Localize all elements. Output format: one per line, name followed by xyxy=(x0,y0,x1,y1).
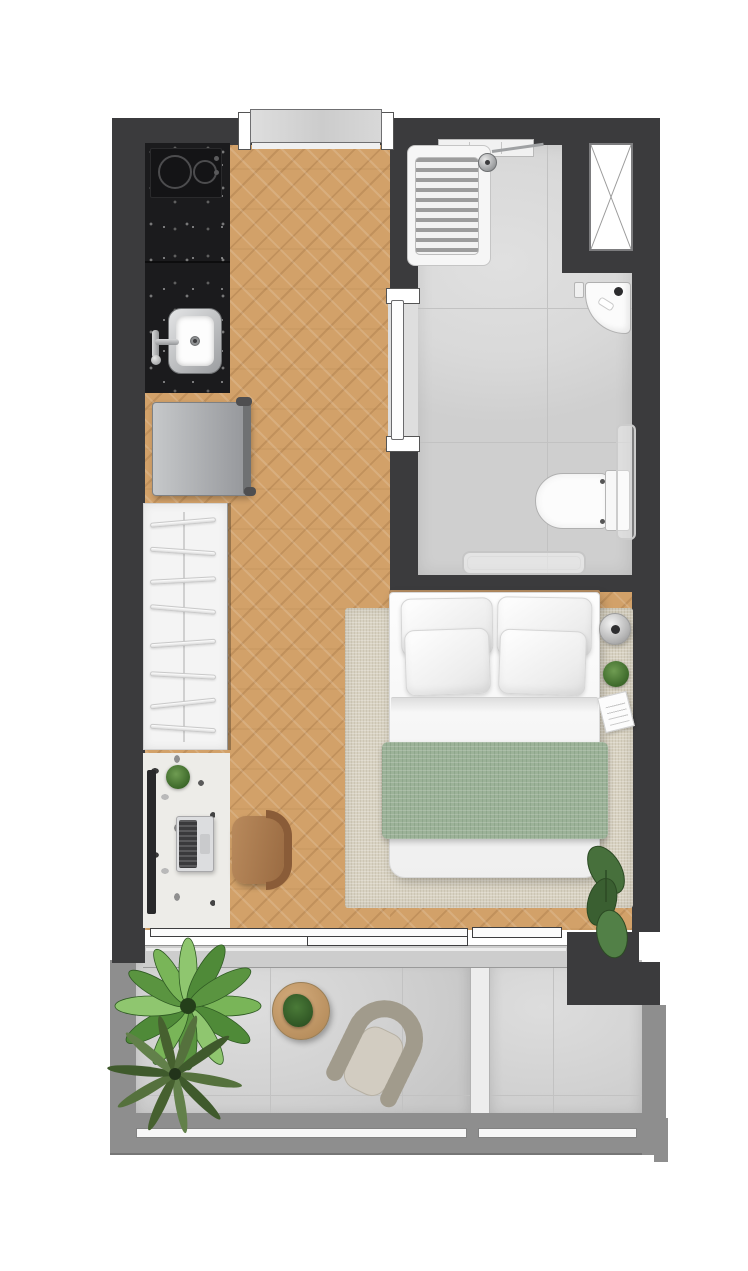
sliding-door-panel xyxy=(307,936,468,946)
book-text-lines xyxy=(605,700,630,726)
wardrobe-rail xyxy=(183,512,185,742)
sink-drain-icon xyxy=(190,336,200,346)
refrigerator-door-edge xyxy=(243,404,251,494)
shower-drain-grate xyxy=(415,157,479,255)
bathroom-wall-lower xyxy=(390,452,418,592)
wall-right xyxy=(632,273,660,932)
desk-plant xyxy=(166,765,190,789)
cooktop-knob-icon xyxy=(214,170,219,175)
toilet-hinge xyxy=(600,479,605,484)
wall-left xyxy=(112,118,145,963)
tv xyxy=(147,770,156,914)
floor-plan xyxy=(0,0,748,1271)
sliding-door-panel xyxy=(472,927,562,938)
bath-mat xyxy=(462,551,586,575)
palm-plant xyxy=(100,1012,250,1138)
balcony-wall-corner xyxy=(654,1118,668,1162)
glass-railing xyxy=(478,1128,637,1138)
toilet-bowl xyxy=(535,473,609,529)
tile-line xyxy=(270,960,271,1117)
burner-icon xyxy=(158,155,192,189)
tile-line xyxy=(416,442,632,443)
washbasin-wall-tab xyxy=(574,282,584,298)
towel-rail xyxy=(616,424,636,540)
wardrobe-edge-shadow xyxy=(227,503,231,750)
wall-balcony-corner-ext xyxy=(639,962,660,1005)
green-blanket xyxy=(382,742,608,839)
lamp-center xyxy=(611,625,620,634)
tile-line xyxy=(490,1095,642,1096)
pillow xyxy=(498,629,587,697)
bath-mat-border xyxy=(467,556,581,570)
counter-seam xyxy=(145,261,230,263)
entrance-door-jamb xyxy=(381,112,394,150)
refrigerator xyxy=(152,402,250,496)
table-plant xyxy=(283,994,313,1027)
shower-head-center xyxy=(485,160,490,165)
drain-center xyxy=(193,339,197,343)
wardrobe xyxy=(143,503,228,750)
shower-head-icon xyxy=(478,153,497,172)
tile-line xyxy=(553,960,554,1117)
bedside-plant xyxy=(603,661,629,687)
laptop-trackpad xyxy=(200,834,210,854)
laptop-keyboard xyxy=(179,820,197,868)
bathroom-sliding-door xyxy=(391,300,404,440)
bedside-lamp xyxy=(599,613,631,645)
faucet-knob-icon xyxy=(151,355,161,365)
ventilation-shaft xyxy=(589,143,633,251)
duvet-fold xyxy=(391,697,598,713)
refrigerator-hinge xyxy=(236,397,252,406)
entrance-door xyxy=(250,109,382,143)
entrance-door-sill xyxy=(252,143,380,149)
balcony-divider xyxy=(470,960,490,1117)
cooktop-knob-icon xyxy=(214,156,219,161)
washbasin-faucet-icon xyxy=(614,287,623,296)
refrigerator-hinge xyxy=(244,487,256,496)
faucet-arm xyxy=(155,339,179,345)
pillow xyxy=(404,628,491,697)
monstera-plant xyxy=(576,842,642,954)
toilet-hinge xyxy=(600,519,605,524)
